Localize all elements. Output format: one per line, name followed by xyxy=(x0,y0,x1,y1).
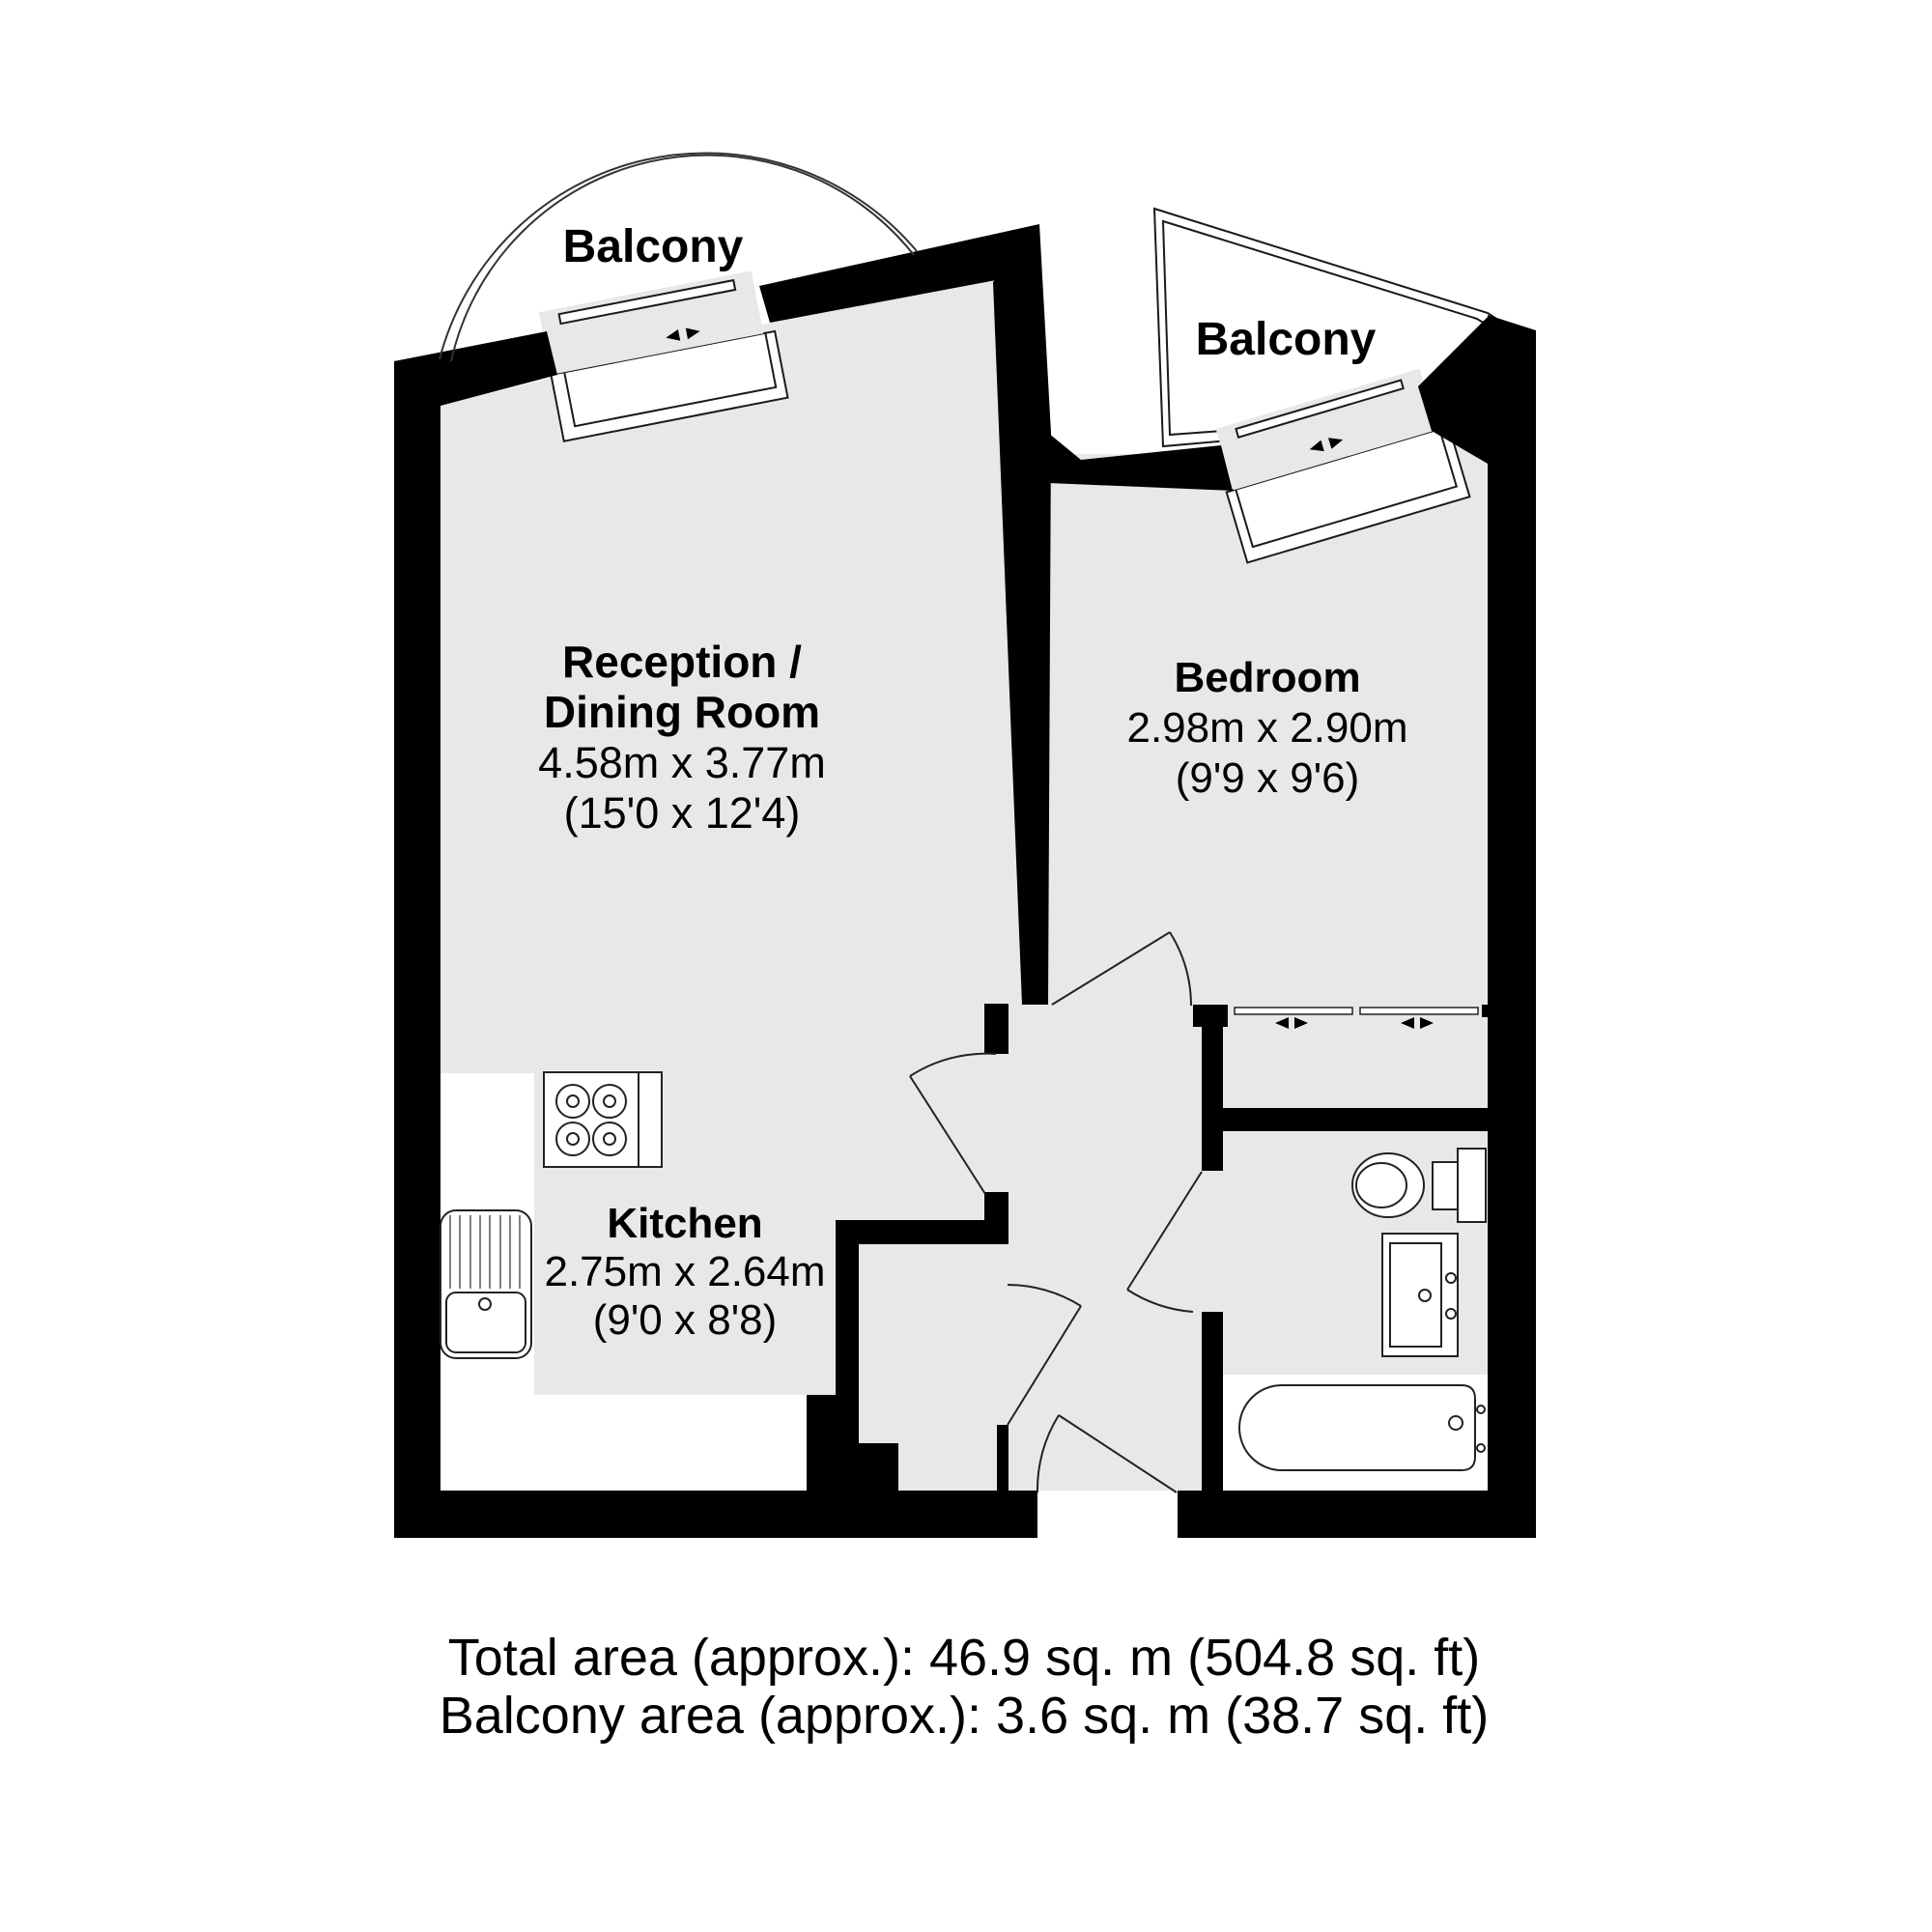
svg-text:4.58m x 3.77m: 4.58m x 3.77m xyxy=(538,738,826,787)
svg-text:Bedroom: Bedroom xyxy=(1174,654,1360,701)
svg-text:2.98m x 2.90m: 2.98m x 2.90m xyxy=(1126,704,1407,752)
svg-text:Balcony: Balcony xyxy=(563,221,744,272)
svg-text:Reception /: Reception / xyxy=(562,637,802,687)
svg-text:Balcony: Balcony xyxy=(1196,314,1377,365)
svg-text:2.75m x 2.64m: 2.75m x 2.64m xyxy=(544,1248,825,1295)
svg-text:(15'0 x 12'4): (15'0 x 12'4) xyxy=(564,788,801,838)
svg-text:(9'9 x 9'6): (9'9 x 9'6) xyxy=(1176,754,1359,802)
svg-text:Balcony area (approx.): 3.6 sq: Balcony area (approx.): 3.6 sq. m (38.7 … xyxy=(440,1687,1490,1745)
svg-text:Total area (approx.): 46.9 sq.: Total area (approx.): 46.9 sq. m (504.8 … xyxy=(448,1629,1481,1687)
svg-text:Kitchen: Kitchen xyxy=(607,1200,762,1247)
svg-text:Dining Room: Dining Room xyxy=(544,687,820,737)
svg-text:(9'0 x 8'8): (9'0 x 8'8) xyxy=(593,1296,777,1344)
